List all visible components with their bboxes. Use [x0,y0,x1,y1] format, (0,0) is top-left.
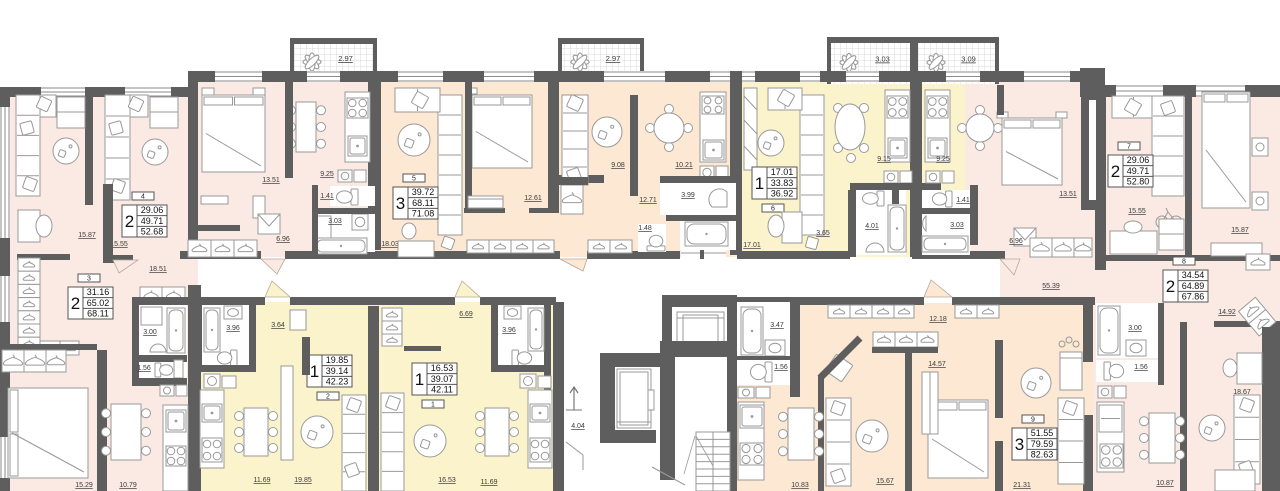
svg-text:11.69: 11.69 [254,477,271,484]
svg-text:10.87: 10.87 [1156,480,1174,487]
svg-text:3.03: 3.03 [875,55,890,64]
svg-text:3.64: 3.64 [271,322,285,329]
svg-text:2: 2 [326,394,330,401]
svg-text:49.71: 49.71 [141,216,164,226]
svg-text:15.87: 15.87 [78,232,96,239]
svg-text:5: 5 [412,176,416,183]
svg-text:7: 7 [1127,144,1131,151]
svg-text:3: 3 [87,276,91,283]
svg-text:16.53: 16.53 [438,477,456,484]
svg-text:17.01: 17.01 [771,167,794,177]
svg-text:10.21: 10.21 [675,162,693,169]
svg-text:82.63: 82.63 [1031,450,1054,460]
svg-text:2: 2 [1111,162,1120,181]
svg-text:42.11: 42.11 [431,385,453,395]
svg-text:2.97: 2.97 [338,54,353,63]
svg-text:3.03: 3.03 [950,222,964,229]
svg-text:3.96: 3.96 [502,327,516,334]
svg-text:9.15: 9.15 [877,156,891,163]
svg-text:6: 6 [771,206,775,213]
svg-text:19.85: 19.85 [294,477,312,484]
svg-text:15.67: 15.67 [876,478,894,485]
svg-text:3.00: 3.00 [143,329,157,336]
svg-text:1.56: 1.56 [774,364,788,371]
svg-text:1.56: 1.56 [137,365,151,372]
svg-text:36.92: 36.92 [771,189,794,199]
svg-text:6.96: 6.96 [1009,238,1023,245]
svg-text:12.71: 12.71 [639,197,657,204]
svg-text:1: 1 [755,174,764,193]
svg-text:15.55: 15.55 [1128,208,1146,215]
svg-text:4: 4 [141,194,145,201]
svg-text:42.23: 42.23 [326,377,349,387]
svg-text:71.08: 71.08 [412,209,435,219]
svg-text:3.03: 3.03 [328,218,342,225]
svg-text:9: 9 [1031,417,1035,424]
svg-text:21.31: 21.31 [1013,482,1031,489]
svg-text:3.00: 3.00 [1128,325,1142,332]
svg-text:13.51: 13.51 [262,177,280,184]
svg-text:3: 3 [1015,435,1024,454]
svg-text:1: 1 [431,402,435,409]
svg-text:14.92: 14.92 [1218,309,1236,316]
svg-text:34.54: 34.54 [1182,270,1205,280]
svg-text:12.18: 12.18 [929,316,947,323]
svg-text:31.16: 31.16 [87,287,110,297]
svg-text:4.01: 4.01 [865,223,879,230]
svg-text:14.57: 14.57 [928,361,946,368]
svg-text:11.69: 11.69 [481,479,498,486]
svg-text:39.72: 39.72 [412,187,435,197]
svg-text:65.02: 65.02 [87,298,110,308]
svg-text:79.59: 79.59 [1031,439,1054,449]
svg-text:16.53: 16.53 [431,363,454,373]
svg-text:6.96: 6.96 [276,236,290,243]
svg-text:10.83: 10.83 [791,482,809,489]
svg-text:29.06: 29.06 [1127,155,1150,165]
svg-text:3.96: 3.96 [226,325,240,332]
svg-text:1.48: 1.48 [638,225,652,232]
svg-text:17.01: 17.01 [743,242,761,249]
svg-text:1: 1 [415,370,424,389]
svg-text:52.68: 52.68 [141,227,164,237]
svg-text:1: 1 [310,362,319,381]
svg-text:2.97: 2.97 [606,54,621,63]
svg-text:2: 2 [1166,277,1175,296]
svg-text:1.56: 1.56 [1134,364,1148,371]
svg-text:6.69: 6.69 [459,311,473,318]
svg-text:18.51: 18.51 [149,266,167,273]
svg-text:2: 2 [71,294,80,313]
svg-text:4.04: 4.04 [571,423,585,430]
svg-text:2: 2 [125,212,134,231]
svg-text:68.11: 68.11 [412,198,434,208]
svg-text:9.08: 9.08 [611,162,625,169]
svg-text:12.61: 12.61 [524,195,542,202]
svg-text:3.09: 3.09 [961,55,976,64]
svg-text:19.85: 19.85 [326,355,349,365]
svg-text:29.06: 29.06 [141,205,164,215]
svg-text:3: 3 [396,194,405,213]
svg-text:9.25: 9.25 [320,171,334,178]
svg-text:1.41: 1.41 [956,197,970,204]
svg-text:18.03: 18.03 [381,241,399,248]
svg-text:64.89: 64.89 [1182,281,1205,291]
svg-text:68.11: 68.11 [87,309,109,319]
svg-text:52.80: 52.80 [1127,177,1150,187]
svg-text:39.14: 39.14 [326,366,349,376]
svg-text:10.79: 10.79 [119,482,137,489]
svg-text:3.47: 3.47 [770,322,784,329]
svg-text:15.29: 15.29 [75,482,93,489]
svg-text:55.39: 55.39 [1042,283,1060,290]
svg-text:8: 8 [1182,259,1186,266]
svg-text:3.99: 3.99 [681,192,695,199]
svg-text:15.87: 15.87 [1231,227,1249,234]
svg-text:51.55: 51.55 [1031,428,1054,438]
svg-text:3.65: 3.65 [816,230,830,237]
svg-text:49.71: 49.71 [1127,166,1150,176]
svg-text:67.86: 67.86 [1182,292,1205,302]
svg-text:33.83: 33.83 [771,178,794,188]
svg-text:1.41: 1.41 [320,193,334,200]
svg-text:13.51: 13.51 [1059,191,1077,198]
svg-text:39.07: 39.07 [431,374,454,384]
svg-text:9.25: 9.25 [936,156,950,163]
